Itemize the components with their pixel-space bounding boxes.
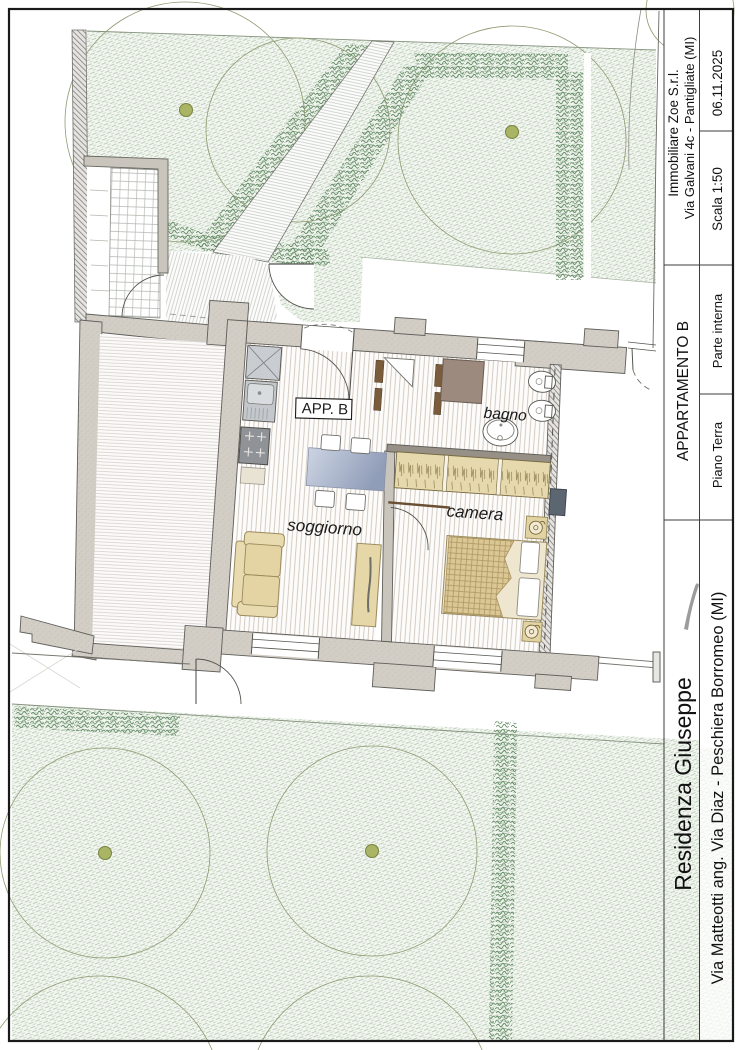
svg-text:06.11.2025: 06.11.2025 — [710, 50, 725, 117]
svg-text:Immobiliare Zoe S.r.l.: Immobiliare Zoe S.r.l. — [666, 69, 681, 197]
svg-text:APPARTAMENTO B: APPARTAMENTO B — [675, 321, 692, 461]
svg-text:Parte interna: Parte interna — [710, 293, 725, 368]
svg-text:Via Galvani 4c - Pantigliate (: Via Galvani 4c - Pantigliate (MI) — [682, 37, 697, 220]
svg-text:Scala 1:50: Scala 1:50 — [710, 167, 725, 231]
svg-text:camera: camera — [446, 501, 504, 524]
svg-text:Piano Terra: Piano Terra — [710, 421, 725, 488]
svg-text:Via Matteotti ang. Via Diaz -: Via Matteotti ang. Via Diaz - Peschiera … — [709, 592, 727, 985]
svg-text:bagno: bagno — [483, 405, 528, 425]
svg-text:Residenza Giuseppe: Residenza Giuseppe — [670, 677, 696, 891]
svg-text:APP. B: APP. B — [302, 400, 349, 418]
